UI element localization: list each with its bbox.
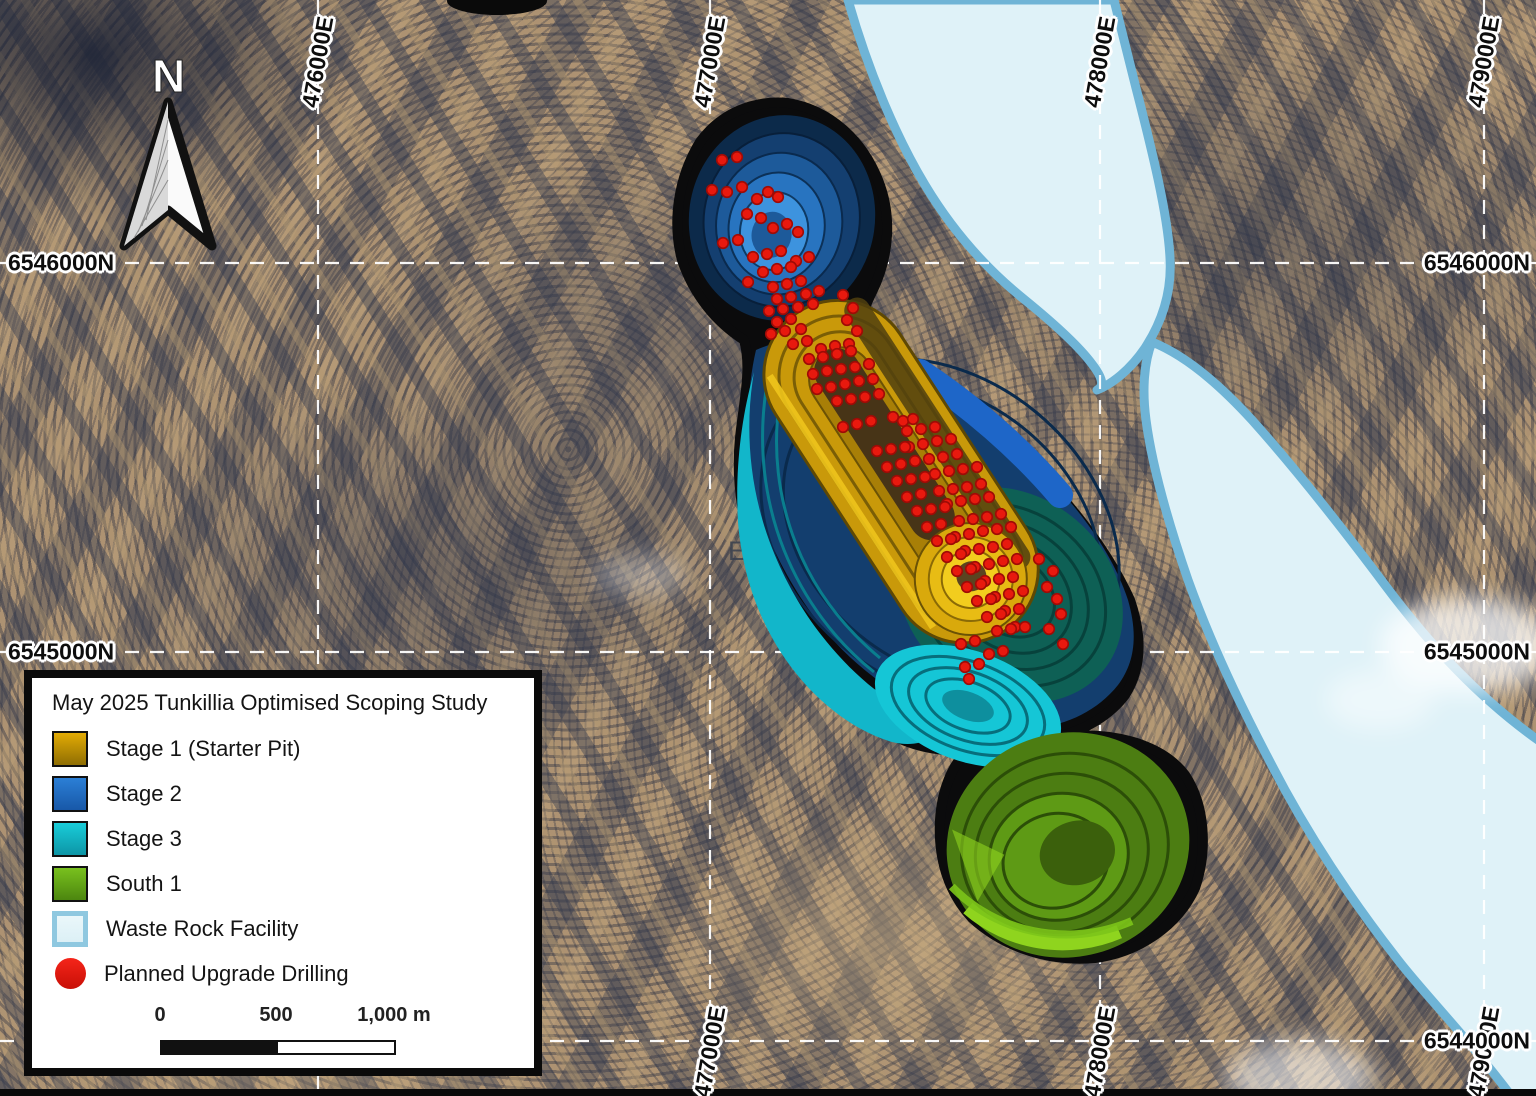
drill-point bbox=[1056, 609, 1067, 620]
drill-point bbox=[964, 529, 975, 540]
drill-point bbox=[992, 626, 1003, 637]
scale-bar-tick: 0 bbox=[154, 1004, 165, 1027]
drill-point bbox=[764, 306, 775, 317]
drill-point bbox=[936, 519, 947, 530]
drill-point bbox=[982, 612, 993, 623]
drill-point bbox=[854, 376, 865, 387]
legend-item-label: Stage 2 bbox=[106, 781, 182, 807]
drill-point bbox=[732, 152, 743, 163]
drill-point bbox=[832, 396, 843, 407]
drill-point bbox=[1004, 589, 1015, 600]
drill-point bbox=[772, 294, 783, 305]
legend-item-drilling: Planned Upgrade Drilling bbox=[52, 951, 522, 996]
drill-point bbox=[952, 449, 963, 460]
drill-point bbox=[874, 389, 885, 400]
drill-point bbox=[1044, 624, 1055, 635]
drill-point bbox=[872, 446, 883, 457]
north-arrow: N bbox=[124, 50, 212, 246]
drill-point bbox=[956, 639, 967, 650]
drill-point bbox=[920, 472, 931, 483]
drill-point bbox=[866, 416, 877, 427]
drill-point bbox=[1002, 539, 1013, 550]
legend-item-wrf: Waste Rock Facility bbox=[52, 906, 522, 951]
drill-point bbox=[996, 509, 1007, 520]
drill-point bbox=[956, 496, 967, 507]
drill-point bbox=[970, 494, 981, 505]
drill-point bbox=[956, 549, 967, 560]
drill-point bbox=[972, 462, 983, 473]
drill-point bbox=[842, 315, 853, 326]
drill-point bbox=[763, 187, 774, 198]
drill-point bbox=[826, 382, 837, 393]
drill-point bbox=[922, 522, 933, 533]
drill-point bbox=[954, 516, 965, 527]
drill-point bbox=[938, 452, 949, 463]
north-arrow-label: N bbox=[152, 50, 185, 102]
drill-point bbox=[986, 594, 997, 605]
drill-point bbox=[1012, 554, 1023, 565]
drill-point bbox=[762, 249, 773, 260]
drill-point bbox=[932, 436, 943, 447]
drill-point bbox=[838, 422, 849, 433]
drill-point bbox=[742, 209, 753, 220]
legend-item-stage2: Stage 2 bbox=[52, 771, 522, 816]
drill-point bbox=[868, 374, 879, 385]
drill-point bbox=[962, 482, 973, 493]
drill-point bbox=[908, 414, 919, 425]
drill-point bbox=[912, 506, 923, 517]
drill-point bbox=[930, 469, 941, 480]
drill-point bbox=[772, 317, 783, 328]
drill-point bbox=[948, 484, 959, 495]
drill-point bbox=[926, 504, 937, 515]
legend-swatch-south1 bbox=[52, 866, 88, 902]
drill-point bbox=[846, 394, 857, 405]
drill-point bbox=[984, 649, 995, 660]
drill-point bbox=[788, 339, 799, 350]
legend-item-label: Planned Upgrade Drilling bbox=[104, 961, 349, 987]
drill-point bbox=[976, 479, 987, 490]
drill-point bbox=[974, 659, 985, 670]
drill-point bbox=[1008, 572, 1019, 583]
drill-point bbox=[773, 192, 784, 203]
drill-point bbox=[946, 434, 957, 445]
drill-point bbox=[852, 419, 863, 430]
legend-item-south1: South 1 bbox=[52, 861, 522, 906]
legend-item-stage3: Stage 3 bbox=[52, 816, 522, 861]
drill-point bbox=[944, 466, 955, 477]
drill-point bbox=[793, 302, 804, 313]
drill-point bbox=[707, 185, 718, 196]
drill-point bbox=[814, 286, 825, 297]
drill-point bbox=[864, 359, 875, 370]
legend-swatch-wrf bbox=[52, 911, 88, 947]
drill-point bbox=[786, 314, 797, 325]
drill-point bbox=[906, 474, 917, 485]
drill-point bbox=[960, 662, 971, 673]
drill-point bbox=[966, 564, 977, 575]
drill-point bbox=[786, 292, 797, 303]
scale-bar: 05001,000 m bbox=[32, 1004, 534, 1074]
drill-point bbox=[982, 512, 993, 523]
drill-point bbox=[998, 646, 1009, 657]
drill-point bbox=[782, 279, 793, 290]
drill-point bbox=[952, 566, 963, 577]
legend-box: May 2025 Tunkillia Optimised Scoping Stu… bbox=[24, 670, 542, 1076]
drill-point bbox=[808, 369, 819, 380]
drill-point bbox=[793, 227, 804, 238]
drill-point bbox=[916, 424, 927, 435]
drill-point bbox=[972, 596, 983, 607]
drill-point bbox=[900, 442, 911, 453]
drill-point bbox=[748, 252, 759, 263]
legend-title: May 2025 Tunkillia Optimised Scoping Stu… bbox=[52, 690, 487, 716]
drill-point bbox=[934, 486, 945, 497]
drill-point bbox=[892, 476, 903, 487]
drill-point bbox=[984, 559, 995, 570]
drill-point bbox=[818, 352, 829, 363]
drill-point bbox=[782, 219, 793, 230]
drill-point bbox=[780, 326, 791, 337]
drill-point bbox=[778, 304, 789, 315]
drill-point bbox=[1042, 582, 1053, 593]
drill-point bbox=[1014, 604, 1025, 615]
drill-point bbox=[962, 582, 973, 593]
drill-point bbox=[822, 366, 833, 377]
drill-point bbox=[998, 556, 1009, 567]
drill-point bbox=[976, 579, 987, 590]
drill-point bbox=[756, 213, 767, 224]
drill-point bbox=[786, 262, 797, 273]
drill-point bbox=[930, 422, 941, 433]
drill-point bbox=[1048, 566, 1059, 577]
drill-point bbox=[984, 492, 995, 503]
drill-point bbox=[932, 536, 943, 547]
drill-point bbox=[1058, 639, 1069, 650]
drill-point bbox=[1018, 586, 1029, 597]
drill-point bbox=[918, 439, 929, 450]
drill-point bbox=[1052, 594, 1063, 605]
drill-point bbox=[896, 459, 907, 470]
drill-point bbox=[838, 290, 849, 301]
drill-point bbox=[902, 426, 913, 437]
drill-point bbox=[852, 326, 863, 337]
drill-point bbox=[916, 489, 927, 500]
drill-point bbox=[860, 392, 871, 403]
bottom-black-bar bbox=[0, 1089, 1536, 1096]
drill-point bbox=[1020, 622, 1031, 633]
drill-point bbox=[768, 282, 779, 293]
drill-point bbox=[970, 636, 981, 647]
drill-point bbox=[796, 324, 807, 335]
drill-point bbox=[743, 277, 754, 288]
drill-point bbox=[722, 187, 733, 198]
drill-point bbox=[988, 542, 999, 553]
map-canvas: EL 590 bbox=[0, 0, 1536, 1096]
drill-point bbox=[996, 609, 1007, 620]
legend-swatch-stage2 bbox=[52, 776, 88, 812]
drill-point bbox=[978, 526, 989, 537]
drill-point bbox=[964, 674, 975, 685]
drill-point bbox=[1034, 554, 1045, 565]
drill-point bbox=[836, 364, 847, 375]
drill-point bbox=[1006, 624, 1017, 635]
drill-point bbox=[974, 544, 985, 555]
legend-swatch-drilling bbox=[55, 958, 86, 989]
scale-bar-tick: 500 bbox=[259, 1004, 292, 1027]
drill-point bbox=[840, 379, 851, 390]
drill-point bbox=[801, 289, 812, 300]
drill-point bbox=[940, 502, 951, 513]
legend-item-stage1: Stage 1 (Starter Pit) bbox=[52, 726, 522, 771]
drill-point bbox=[752, 194, 763, 205]
drill-point bbox=[804, 252, 815, 263]
drill-point bbox=[886, 444, 897, 455]
drill-point bbox=[832, 349, 843, 360]
legend-swatch-stage3 bbox=[52, 821, 88, 857]
drill-point bbox=[846, 346, 857, 357]
legend-item-label: South 1 bbox=[106, 871, 182, 897]
drill-point bbox=[812, 384, 823, 395]
drill-point bbox=[737, 182, 748, 193]
legend-items: Stage 1 (Starter Pit)Stage 2Stage 3South… bbox=[52, 726, 522, 996]
drill-point bbox=[888, 412, 899, 423]
drill-point bbox=[992, 524, 1003, 535]
drill-point bbox=[772, 264, 783, 275]
drill-point bbox=[848, 303, 859, 314]
legend-item-label: Waste Rock Facility bbox=[106, 916, 298, 942]
drill-point bbox=[717, 155, 728, 166]
top-edge-black-blob bbox=[447, 0, 547, 15]
drill-point bbox=[850, 362, 861, 373]
drill-point bbox=[766, 329, 777, 340]
drill-point bbox=[733, 235, 744, 246]
legend-item-label: Stage 3 bbox=[106, 826, 182, 852]
scale-bar-graphic bbox=[160, 1040, 396, 1055]
drill-point bbox=[958, 464, 969, 475]
scale-bar-tick: 1,000 m bbox=[357, 1004, 430, 1027]
drill-point bbox=[808, 299, 819, 310]
drill-point bbox=[718, 238, 729, 249]
drill-point bbox=[946, 534, 957, 545]
drill-point bbox=[802, 336, 813, 347]
drill-point bbox=[758, 267, 769, 278]
drill-point bbox=[1006, 522, 1017, 533]
legend-swatch-stage1 bbox=[52, 731, 88, 767]
drill-point bbox=[924, 454, 935, 465]
drill-point bbox=[898, 416, 909, 427]
legend-item-label: Stage 1 (Starter Pit) bbox=[106, 736, 300, 762]
drill-point bbox=[910, 456, 921, 467]
drill-point bbox=[796, 276, 807, 287]
drill-point bbox=[768, 223, 779, 234]
drill-point bbox=[882, 462, 893, 473]
drill-point bbox=[994, 574, 1005, 585]
drill-point bbox=[942, 552, 953, 563]
drill-point bbox=[902, 492, 913, 503]
drill-point bbox=[804, 354, 815, 365]
drill-point bbox=[968, 514, 979, 525]
drill-point bbox=[776, 246, 787, 257]
